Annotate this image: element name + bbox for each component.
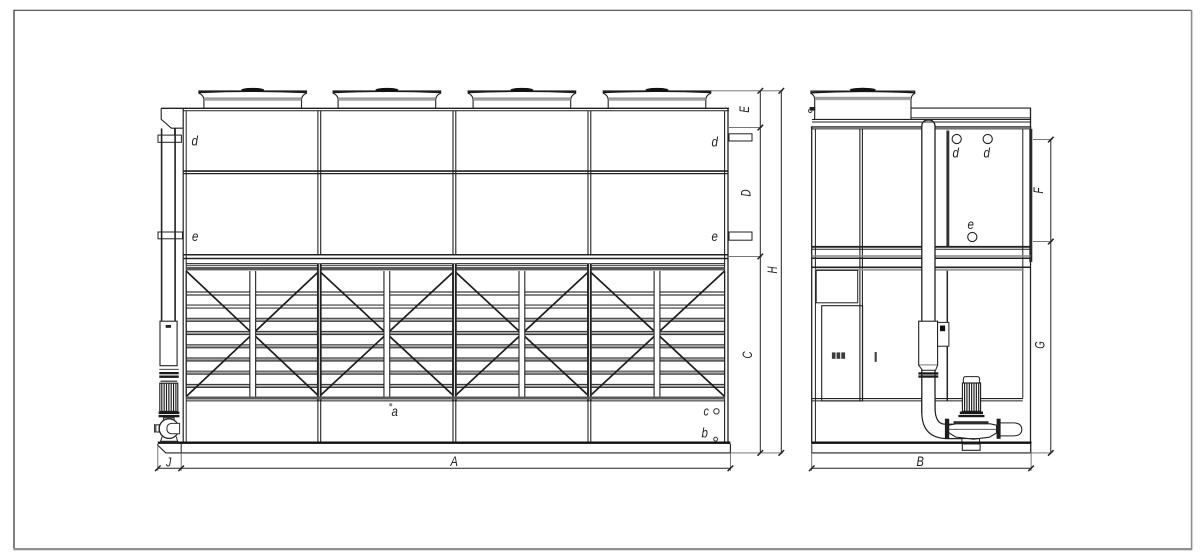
svg-text:H: H xyxy=(766,266,781,273)
svg-text:e: e xyxy=(968,216,974,232)
svg-text:e: e xyxy=(192,228,198,244)
svg-text:d: d xyxy=(192,132,199,148)
svg-text:e: e xyxy=(712,228,718,244)
svg-text:G: G xyxy=(1033,341,1048,349)
svg-text:a: a xyxy=(392,403,398,419)
svg-text:E: E xyxy=(738,106,753,113)
svg-text:B: B xyxy=(917,454,924,469)
svg-text:c: c xyxy=(704,403,709,418)
svg-text:d: d xyxy=(953,144,960,160)
svg-text:F: F xyxy=(1032,187,1047,194)
svg-text:D: D xyxy=(739,189,754,196)
svg-text:d: d xyxy=(984,144,991,160)
svg-text:d: d xyxy=(712,133,719,149)
svg-text:J: J xyxy=(165,455,172,470)
svg-text:b: b xyxy=(702,424,708,440)
svg-text:A: A xyxy=(450,454,458,469)
svg-text:C: C xyxy=(741,351,756,358)
